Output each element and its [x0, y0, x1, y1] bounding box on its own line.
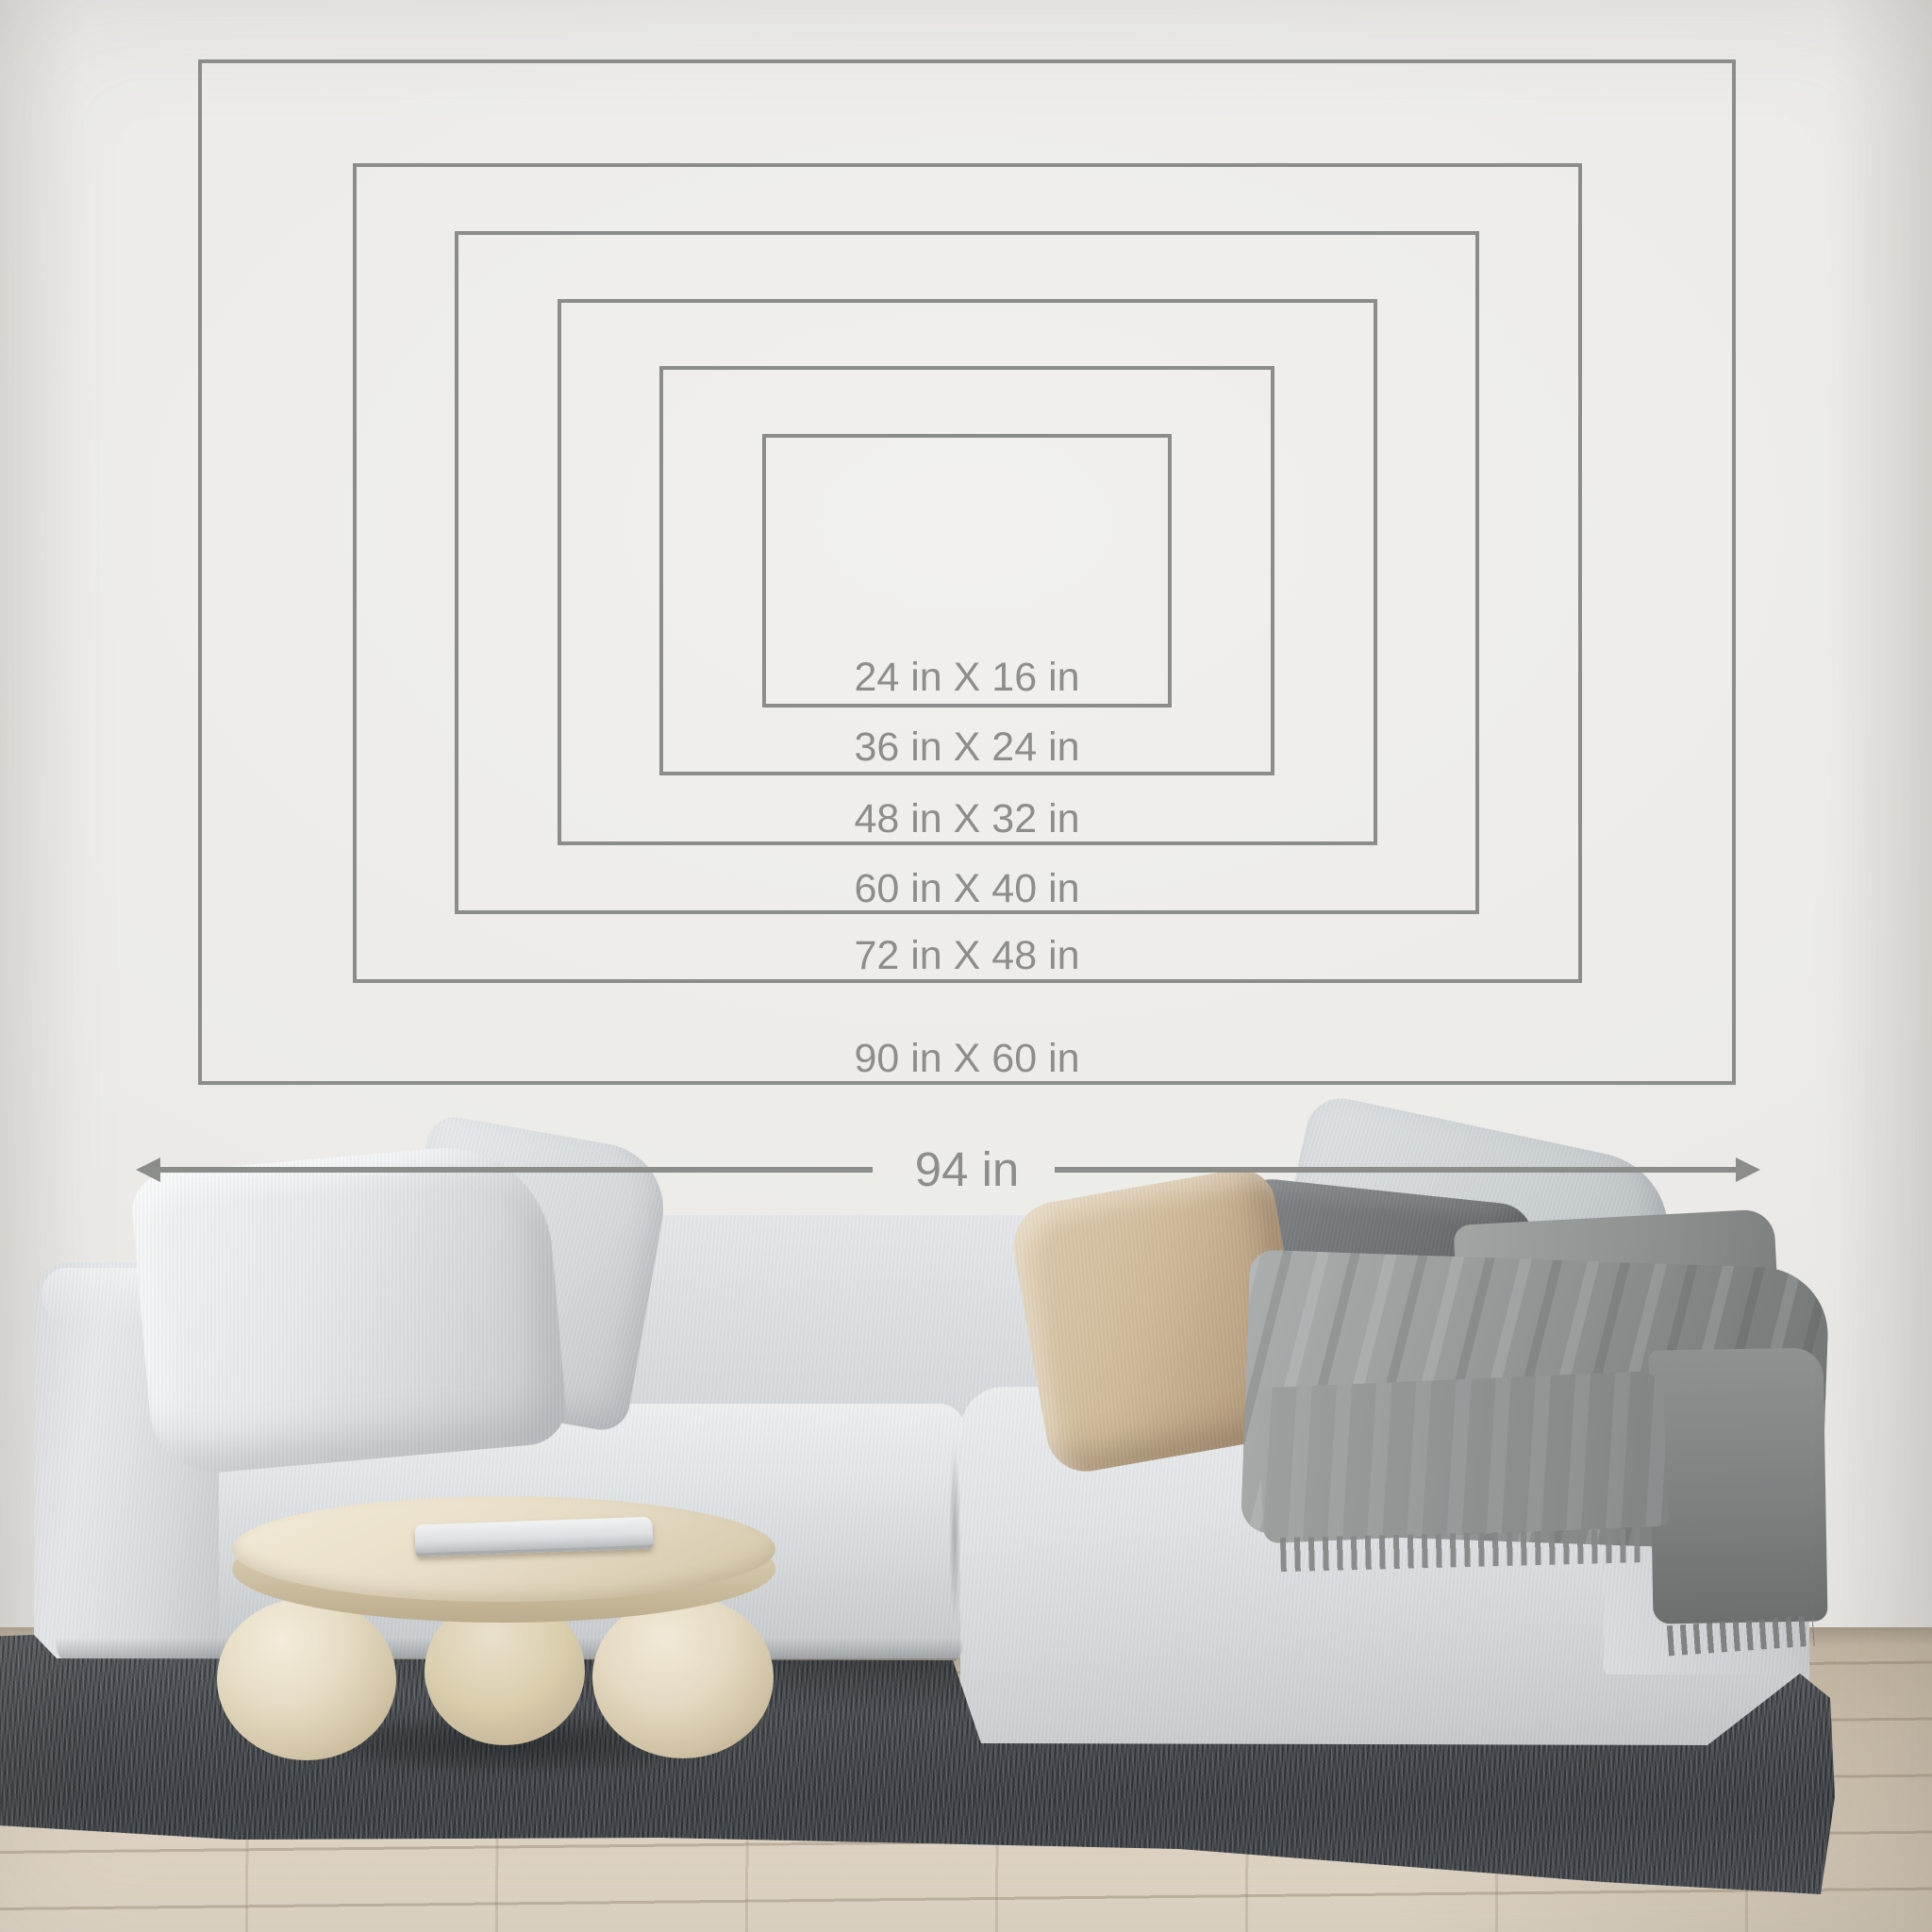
reference-arrow-line-right	[1055, 1167, 1736, 1173]
table-ball-leg-left	[217, 1598, 396, 1760]
reference-width-label: 94 in	[915, 1143, 1020, 1196]
light-pillow-front-left	[129, 1139, 569, 1477]
wall-art-size-guide: 90 in X 60 in 72 in X 48 in 60 in X 40 i…	[0, 0, 1932, 1932]
arrowhead-right-icon	[1736, 1158, 1760, 1182]
sofa-cushion-seam	[947, 1410, 962, 1656]
size-label-72x48: 72 in X 48 in	[854, 931, 1079, 980]
size-label-90x60: 90 in X 60 in	[854, 1034, 1079, 1083]
size-label-48x32: 48 in X 32 in	[854, 794, 1079, 843]
size-label-24x16: 24 in X 16 in	[854, 653, 1079, 702]
arrowhead-left-icon	[136, 1158, 160, 1182]
table-ball-leg-right	[592, 1596, 774, 1758]
size-label-36x24: 36 in X 24 in	[854, 723, 1079, 772]
throw-blanket-armrest	[1648, 1347, 1827, 1624]
reference-arrow-line-left	[158, 1167, 873, 1173]
size-label-60x40: 60 in X 40 in	[854, 864, 1079, 913]
throw-blanket-fringe-edge	[1257, 1371, 1670, 1544]
